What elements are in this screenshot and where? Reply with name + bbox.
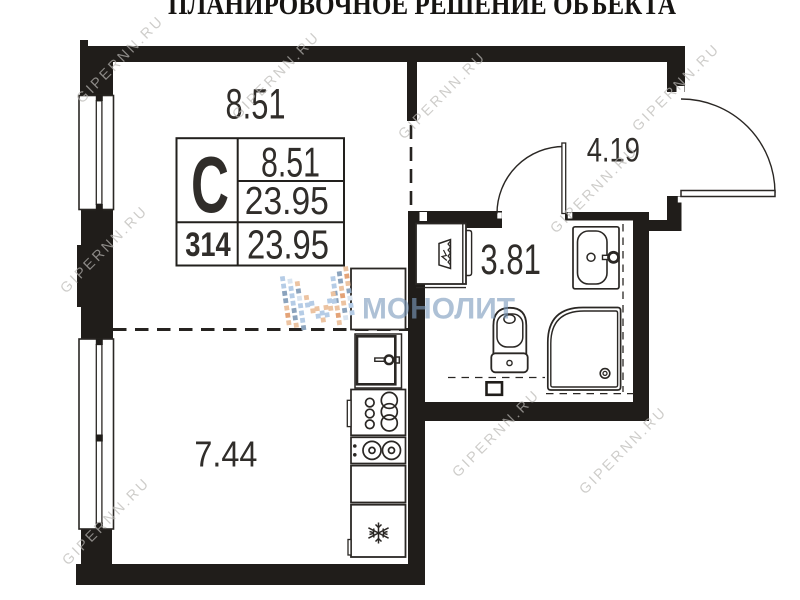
svg-text:МОНОЛИТ: МОНОЛИТ <box>362 293 515 326</box>
svg-text:7.44: 7.44 <box>194 433 257 474</box>
svg-text:ПЛАНИРОВОЧНОЕ РЕШЕНИЕ ОБЪЕКТА: ПЛАНИРОВОЧНОЕ РЕШЕНИЕ ОБЪЕКТА <box>168 0 676 21</box>
svg-text:С: С <box>191 140 229 229</box>
svg-text:8.51: 8.51 <box>261 139 320 186</box>
svg-text:23.95: 23.95 <box>247 222 329 268</box>
svg-text:23.95: 23.95 <box>245 180 329 223</box>
svg-text:3.81: 3.81 <box>480 236 541 284</box>
svg-text:314: 314 <box>185 226 231 264</box>
